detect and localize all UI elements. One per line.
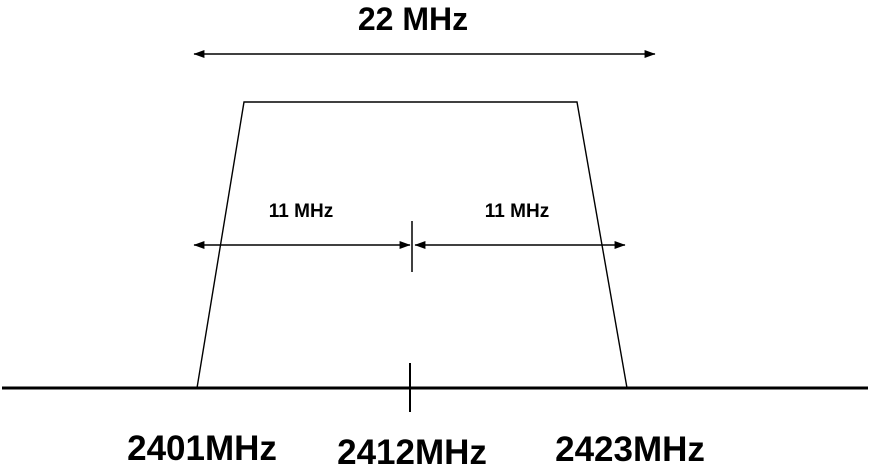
center-frequency-label: 2412MHz — [337, 435, 487, 470]
diagram-lines — [0, 0, 871, 472]
total-bandwidth-label: 22 MHz — [358, 3, 468, 35]
upper-edge-frequency-label: 2423MHz — [555, 432, 705, 467]
lower-edge-frequency-label: 2401MHz — [127, 431, 277, 466]
left-half-bandwidth-label: 11 MHz — [269, 202, 333, 221]
right-half-bandwidth-label: 11 MHz — [485, 202, 549, 221]
spectrum-diagram: 22 MHz 11 MHz 11 MHz 2401MHz 2412MHz 242… — [0, 0, 871, 472]
